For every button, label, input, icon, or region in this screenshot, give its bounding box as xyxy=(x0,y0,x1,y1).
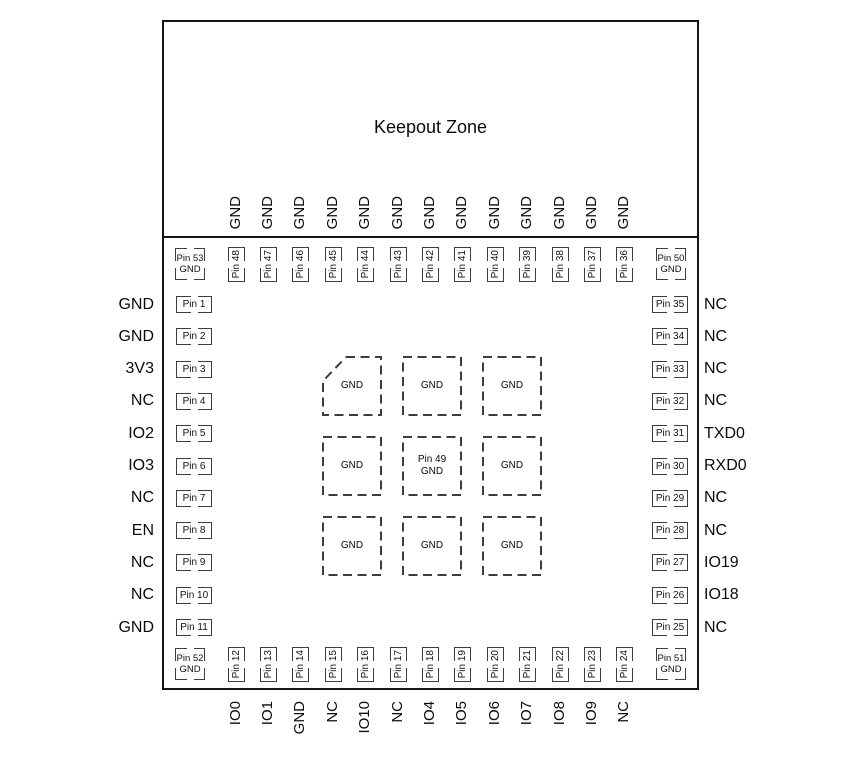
pad-pin-number: Pin 30 xyxy=(656,461,684,472)
net-label-pin-27: IO19 xyxy=(704,553,834,573)
net-label-pin-13: IO1 xyxy=(259,701,277,725)
pad-pin-number: Pin 44 xyxy=(360,250,371,278)
net-label-pin-39: GND xyxy=(518,196,536,229)
pad-pin-number: Pin 31 xyxy=(656,428,684,439)
pad-pin-13: Pin 13 xyxy=(260,647,277,682)
pad-pin-39: Pin 39 xyxy=(519,247,536,282)
pad-pin-number: Pin 28 xyxy=(656,525,684,536)
pad-pin-number: Pin 26 xyxy=(656,590,684,601)
net-label-pin-7: NC xyxy=(36,488,154,508)
pad-pin-42: Pin 42 xyxy=(422,247,439,282)
pad-pin-38: Pin 38 xyxy=(552,247,569,282)
net-label-pin-23: IO9 xyxy=(583,701,601,725)
pad-pin-number: Pin 29 xyxy=(656,493,684,504)
pad-pin-number: Pin 19 xyxy=(457,650,468,678)
pad-pin-16: Pin 16 xyxy=(357,647,374,682)
pad-pin-number: Pin 12 xyxy=(231,650,242,678)
net-label-pin-12: IO0 xyxy=(227,701,245,725)
pad-pin-number: Pin 3 xyxy=(183,364,206,375)
pad-pin-number: Pin 21 xyxy=(522,650,533,678)
pad-pin-50: Pin 50 GND xyxy=(656,248,686,280)
net-label-pin-25: NC xyxy=(704,618,834,638)
center-gnd-pad: GND xyxy=(402,516,462,576)
net-label-pin-9: NC xyxy=(36,553,154,573)
center-gnd-pad: GND xyxy=(322,436,382,496)
footprint-diagram: Keepout Zone Pin 48 Pin 47 Pin 46 Pin 45… xyxy=(0,0,861,757)
net-label-pin-14: GND xyxy=(291,701,309,734)
pad-notch xyxy=(657,649,685,679)
pad-pin-23: Pin 23 xyxy=(584,647,601,682)
pad-pin-17: Pin 17 xyxy=(390,647,407,682)
pad-pin-number: Pin 6 xyxy=(183,461,206,472)
net-label-pin-6: IO3 xyxy=(36,456,154,476)
pad-pin-32: Pin 32 xyxy=(652,393,688,410)
pad-pin-40: Pin 40 xyxy=(487,247,504,282)
net-label-pin-11: GND xyxy=(36,618,154,638)
pad-pin-number: Pin 13 xyxy=(263,650,274,678)
pad-pin-20: Pin 20 xyxy=(487,647,504,682)
pad-pin-number: Pin 40 xyxy=(490,250,501,278)
net-label-pin-1: GND xyxy=(36,295,154,315)
pad-pin-5: Pin 5 xyxy=(176,425,212,442)
pad-pin-3: Pin 3 xyxy=(176,361,212,378)
net-label-pin-43: GND xyxy=(389,196,407,229)
pad-pin-8: Pin 8 xyxy=(176,522,212,539)
pad-pin-43: Pin 43 xyxy=(390,247,407,282)
pad-pin-number: Pin 34 xyxy=(656,331,684,342)
pad-pin-6: Pin 6 xyxy=(176,458,212,475)
pad-net-label: GND xyxy=(341,460,363,472)
pad-notch xyxy=(176,649,204,679)
pad-net-label: GND xyxy=(501,380,523,392)
pad-pin-number: Pin 43 xyxy=(393,250,404,278)
pad-pin-number: Pin 9 xyxy=(183,557,206,568)
pad-pin-number: Pin 25 xyxy=(656,622,684,633)
pad-net-label: GND xyxy=(421,466,443,478)
center-gnd-pad: GND xyxy=(482,436,542,496)
pad-pin-number: Pin 49 xyxy=(418,454,446,466)
pad-pin-7: Pin 7 xyxy=(176,490,212,507)
pad-pin-19: Pin 19 xyxy=(454,647,471,682)
net-label-pin-46: GND xyxy=(291,196,309,229)
pad-net-label: GND xyxy=(501,460,523,472)
pad-pin-number: Pin 39 xyxy=(522,250,533,278)
net-label-pin-16: IO10 xyxy=(356,701,374,734)
pad-pin-34: Pin 34 xyxy=(652,328,688,345)
net-label-pin-45: GND xyxy=(324,196,342,229)
pad-pin-21: Pin 21 xyxy=(519,647,536,682)
pad-pin-45: Pin 45 xyxy=(325,247,342,282)
net-label-pin-37: GND xyxy=(583,196,601,229)
pad-pin-33: Pin 33 xyxy=(652,361,688,378)
net-label-pin-41: GND xyxy=(453,196,471,229)
pad-pin-number: Pin 10 xyxy=(180,590,208,601)
pad-pin-52: Pin 52 GND xyxy=(175,648,205,680)
pad-pin-number: Pin 5 xyxy=(183,428,206,439)
pad-pin-46: Pin 46 xyxy=(292,247,309,282)
pad-pin-41: Pin 41 xyxy=(454,247,471,282)
pad-pin-53: Pin 53 GND xyxy=(175,248,205,280)
pad-pin-number: Pin 33 xyxy=(656,364,684,375)
keepout-zone-label: Keepout Zone xyxy=(162,117,699,137)
net-label-pin-34: NC xyxy=(704,327,834,347)
net-label-pin-3: 3V3 xyxy=(36,359,154,379)
pad-pin-9: Pin 9 xyxy=(176,554,212,571)
pad-pin-37: Pin 37 xyxy=(584,247,601,282)
net-label-pin-18: IO4 xyxy=(421,701,439,725)
net-label-pin-21: IO7 xyxy=(518,701,536,725)
pad-pin-number: Pin 32 xyxy=(656,396,684,407)
net-label-pin-20: IO6 xyxy=(486,701,504,725)
pad-pin-number: Pin 23 xyxy=(587,650,598,678)
pad-pin-49: Pin 49 GND xyxy=(402,436,462,496)
pad-pin-15: Pin 15 xyxy=(325,647,342,682)
net-label-pin-5: IO2 xyxy=(36,424,154,444)
pad-pin-30: Pin 30 xyxy=(652,458,688,475)
pad-pin-number: Pin 48 xyxy=(231,250,242,278)
pad-pin-number: Pin 36 xyxy=(619,250,630,278)
net-label-pin-31: TXD0 xyxy=(704,424,834,444)
pad-pin-18: Pin 18 xyxy=(422,647,439,682)
pad-pin-number: Pin 24 xyxy=(619,650,630,678)
pad-pin-10: Pin 10 xyxy=(176,587,212,604)
net-label-pin-17: NC xyxy=(389,701,407,723)
pad-pin-36: Pin 36 xyxy=(616,247,633,282)
net-label-pin-32: NC xyxy=(704,391,834,411)
pad-pin-number: Pin 2 xyxy=(183,331,206,342)
net-label-pin-38: GND xyxy=(551,196,569,229)
net-label-pin-30: RXD0 xyxy=(704,456,834,476)
pad-notch xyxy=(176,249,204,279)
net-label-pin-47: GND xyxy=(259,196,277,229)
center-gnd-pad: GND xyxy=(322,516,382,576)
pad-pin-48: Pin 48 xyxy=(228,247,245,282)
net-label-pin-15: NC xyxy=(324,701,342,723)
pad-pin-24: Pin 24 xyxy=(616,647,633,682)
pad-pin-number: Pin 41 xyxy=(457,250,468,278)
net-label-pin-28: NC xyxy=(704,521,834,541)
pad-pin-35: Pin 35 xyxy=(652,296,688,313)
net-label-pin-19: IO5 xyxy=(453,701,471,725)
pad-pin-28: Pin 28 xyxy=(652,522,688,539)
pad-pin-2: Pin 2 xyxy=(176,328,212,345)
pad-net-label: GND xyxy=(341,540,363,552)
pad-pin-31: Pin 31 xyxy=(652,425,688,442)
net-label-pin-48: GND xyxy=(227,196,245,229)
pad-net-label: GND xyxy=(421,540,443,552)
pad-pin-number: Pin 45 xyxy=(328,250,339,278)
pad-pin-number: Pin 20 xyxy=(490,650,501,678)
pad-net-label: GND xyxy=(501,540,523,552)
pad-pin-number: Pin 47 xyxy=(263,250,274,278)
center-gnd-pad-chamfered: GND xyxy=(322,356,382,416)
net-label-pin-22: IO8 xyxy=(551,701,569,725)
net-label-pin-26: IO18 xyxy=(704,585,834,605)
pad-pin-number: Pin 7 xyxy=(183,493,206,504)
pad-pin-number: Pin 35 xyxy=(656,299,684,310)
net-label-pin-4: NC xyxy=(36,391,154,411)
pad-pin-number: Pin 16 xyxy=(360,650,371,678)
pad-pin-number: Pin 8 xyxy=(183,525,206,536)
pad-net-label: GND xyxy=(421,380,443,392)
pad-pin-27: Pin 27 xyxy=(652,554,688,571)
pad-pin-number: Pin 11 xyxy=(180,622,208,633)
pad-pin-number: Pin 4 xyxy=(183,396,206,407)
pad-pin-4: Pin 4 xyxy=(176,393,212,410)
pad-pin-number: Pin 14 xyxy=(295,650,306,678)
pad-pin-number: Pin 1 xyxy=(183,299,206,310)
keepout-boundary-line xyxy=(162,236,699,238)
center-gnd-pad: GND xyxy=(482,516,542,576)
net-label-pin-10: NC xyxy=(36,585,154,605)
pad-pin-number: Pin 18 xyxy=(425,650,436,678)
pad-pin-25: Pin 25 xyxy=(652,619,688,636)
pad-net-label: GND xyxy=(341,380,363,392)
net-label-pin-44: GND xyxy=(356,196,374,229)
center-gnd-pad: GND xyxy=(482,356,542,416)
pad-pin-11: Pin 11 xyxy=(176,619,212,636)
pad-pin-22: Pin 22 xyxy=(552,647,569,682)
net-label-pin-24: NC xyxy=(615,701,633,723)
pad-pin-number: Pin 38 xyxy=(555,250,566,278)
net-label-pin-33: NC xyxy=(704,359,834,379)
pad-pin-number: Pin 42 xyxy=(425,250,436,278)
net-label-pin-8: EN xyxy=(36,521,154,541)
net-label-pin-40: GND xyxy=(486,196,504,229)
pad-pin-26: Pin 26 xyxy=(652,587,688,604)
pad-pin-1: Pin 1 xyxy=(176,296,212,313)
pad-pin-number: Pin 15 xyxy=(328,650,339,678)
net-label-pin-35: NC xyxy=(704,295,834,315)
pad-pin-51: Pin 51 GND xyxy=(656,648,686,680)
net-label-pin-2: GND xyxy=(36,327,154,347)
pad-pin-14: Pin 14 xyxy=(292,647,309,682)
pad-pin-44: Pin 44 xyxy=(357,247,374,282)
net-label-pin-29: NC xyxy=(704,488,834,508)
pad-pin-number: Pin 17 xyxy=(393,650,404,678)
pad-pin-number: Pin 37 xyxy=(587,250,598,278)
pad-pin-29: Pin 29 xyxy=(652,490,688,507)
pad-pin-12: Pin 12 xyxy=(228,647,245,682)
pad-pin-number: Pin 27 xyxy=(656,557,684,568)
pad-pin-number: Pin 22 xyxy=(555,650,566,678)
net-label-pin-42: GND xyxy=(421,196,439,229)
center-gnd-pad: GND xyxy=(402,356,462,416)
pad-notch xyxy=(657,249,685,279)
net-label-pin-36: GND xyxy=(615,196,633,229)
pad-pin-number: Pin 46 xyxy=(295,250,306,278)
pad-pin-47: Pin 47 xyxy=(260,247,277,282)
